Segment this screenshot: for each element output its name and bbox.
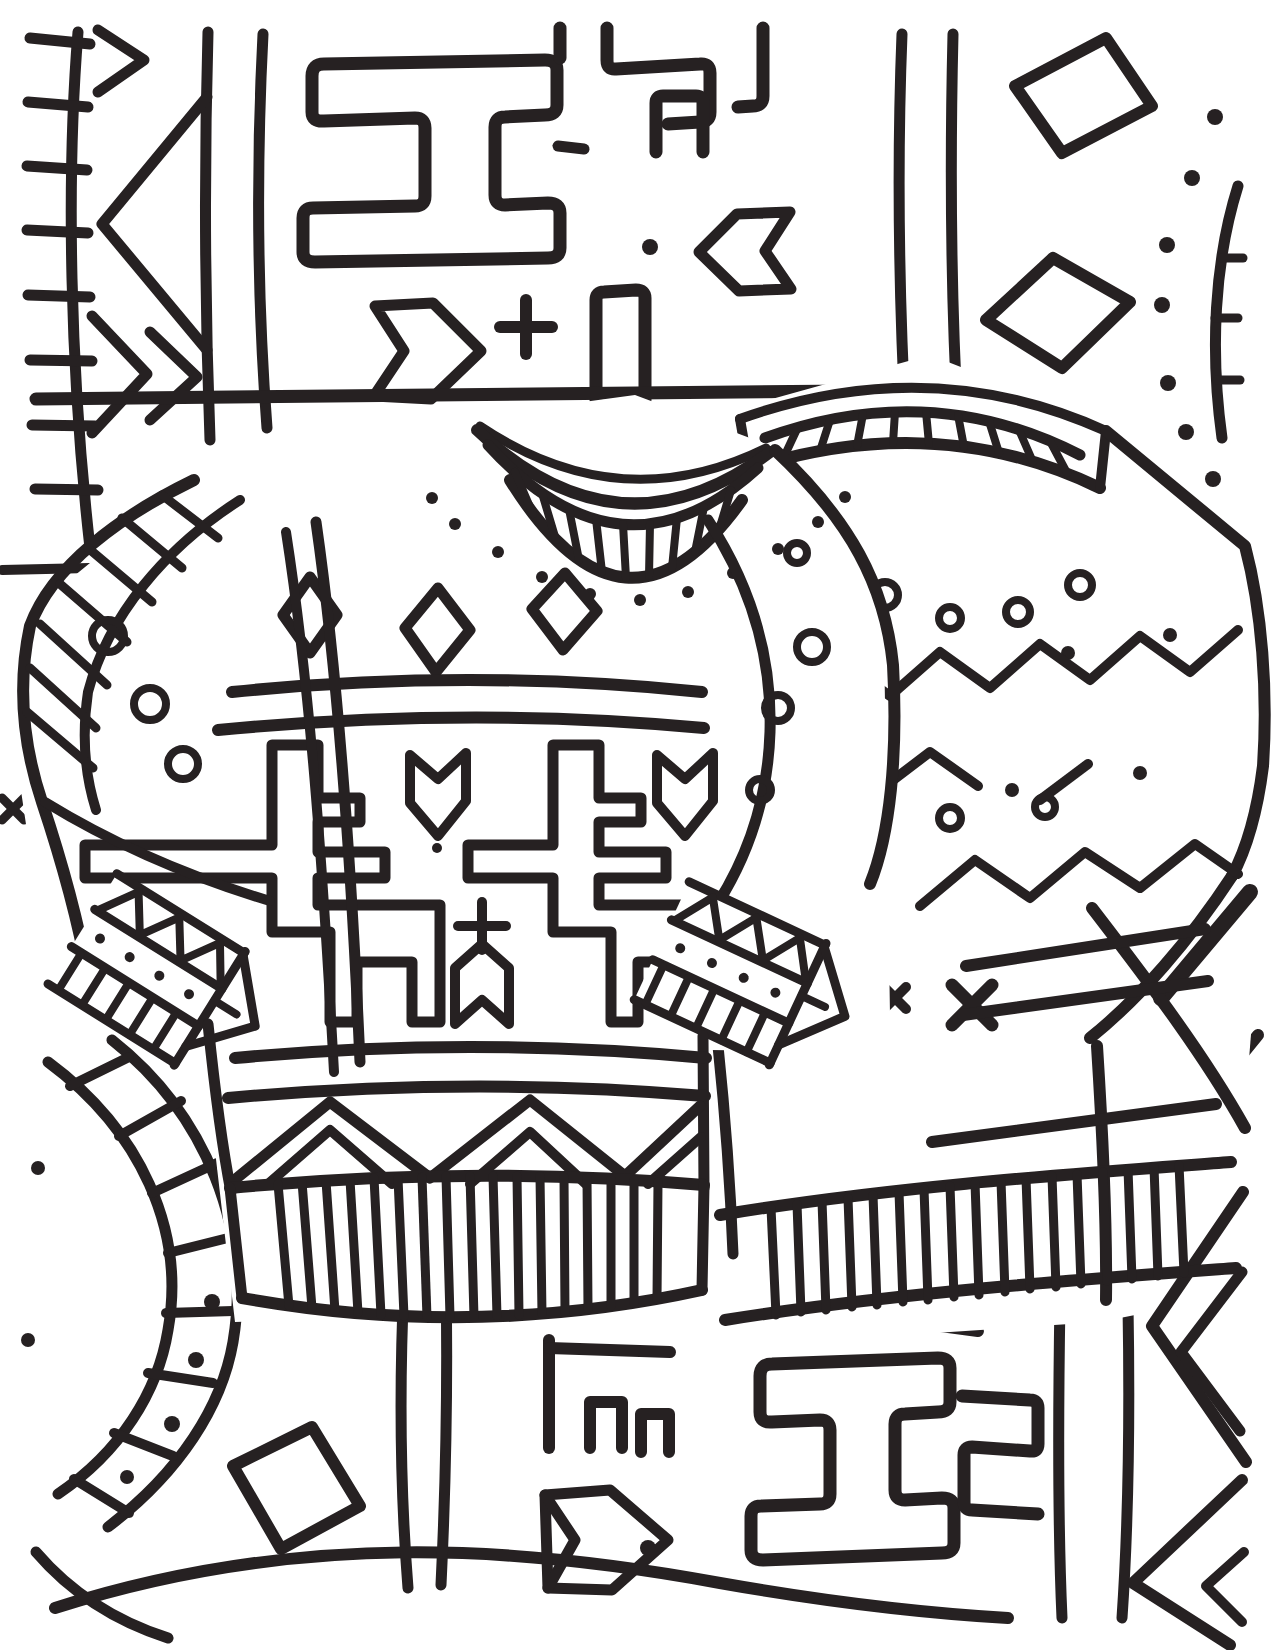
chevron-arrow-left <box>699 212 791 291</box>
i-beam-maze <box>751 1358 954 1560</box>
chevron-mark <box>92 316 147 433</box>
nested-chevron <box>1206 1552 1244 1622</box>
band-line <box>36 391 850 399</box>
tilted-square <box>986 258 1130 368</box>
vertical-line <box>1059 1300 1062 1618</box>
coloring-illustration: Black and white line-art coloring page: … <box>0 0 1275 1650</box>
s-maze <box>962 1396 1038 1514</box>
chevron-mark <box>98 30 144 92</box>
vertical-line <box>401 1281 408 1588</box>
right-edge-ribbed-arc <box>1215 186 1243 438</box>
pattern-dot <box>432 843 442 853</box>
tilted-square <box>1015 38 1152 153</box>
tilted-square <box>233 1427 360 1549</box>
x-mark <box>2 798 24 820</box>
chevron-arrow-right <box>374 303 481 399</box>
maze-fragment <box>549 1340 670 1452</box>
pattern-dot <box>642 239 658 255</box>
top-maze-pattern <box>303 28 763 400</box>
chevron-mark <box>150 332 197 420</box>
coloring-page: Black and white line-art coloring page: … <box>0 0 1275 1650</box>
vertical-line <box>1122 1305 1129 1618</box>
vertical-line <box>441 1281 447 1585</box>
plus-sign <box>500 300 552 354</box>
nested-triangle <box>102 97 207 350</box>
ladder-arc <box>48 1040 237 1527</box>
i-beam-maze <box>303 60 560 262</box>
